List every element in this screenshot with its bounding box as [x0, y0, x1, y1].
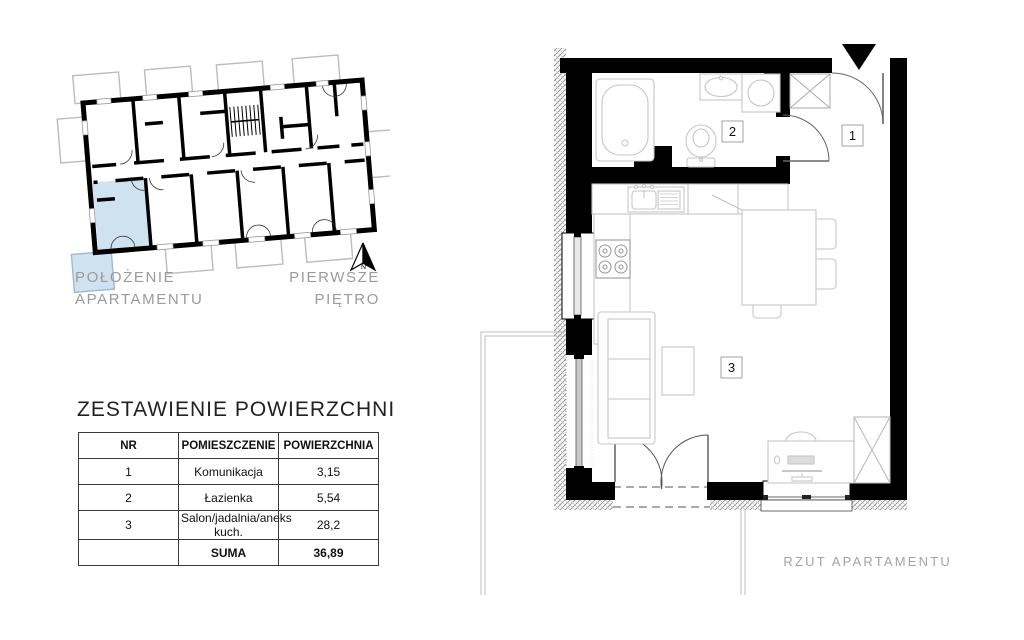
apartment-floor-plan: 1 2 3: [450, 28, 980, 608]
room-label-2: 2: [729, 124, 736, 139]
total-empty-cell: [79, 540, 179, 566]
entrance-triangle-icon: [842, 44, 876, 70]
table-row: 2 Łazienka 5,54: [79, 485, 379, 511]
page: POŁOŻENIE APARTAMENTU N PIERWSZE PIĘTRO …: [0, 0, 1024, 640]
toilet: [686, 125, 716, 167]
room-label-1: 1: [849, 128, 856, 143]
plan-caption: RZUT APARTAMENTU: [783, 554, 952, 569]
row-area: 5,54: [279, 485, 379, 511]
kitchen-sink: [628, 184, 684, 212]
row-room: Komunikacja: [179, 459, 279, 485]
row-room: Salon/jadalnia/aneks kuch.: [179, 511, 279, 540]
row-room: Łazienka: [179, 485, 279, 511]
bathroom-sink: [700, 74, 742, 100]
table-row: 1 Komunikacja 3,15: [79, 459, 379, 485]
overview-stairs: [230, 105, 260, 137]
total-value: 36,89: [279, 540, 379, 566]
desk: [768, 432, 854, 483]
highlighted-apartment: [93, 178, 151, 250]
row-nr: 1: [79, 459, 179, 485]
bathroom-door: [783, 115, 829, 161]
row-nr: 3: [79, 511, 179, 540]
table-total-row: SUMA 36,89: [79, 540, 379, 566]
shaft-box: [790, 74, 830, 108]
bathtub: [596, 79, 654, 161]
wardrobe: [854, 417, 890, 483]
col-header-room: POMIESZCZENIE: [179, 433, 279, 459]
coffee-table: [662, 347, 694, 395]
col-header-nr: NR: [79, 433, 179, 459]
stove: [596, 240, 630, 278]
washing-machine: [742, 74, 780, 112]
entrance-door: [832, 73, 883, 124]
sofa: [598, 312, 655, 444]
area-table-title: ZESTAWIENIE POWIERZCHNI: [77, 398, 395, 422]
floor-caption-line2: PIĘTRO: [180, 289, 380, 311]
area-table-header-row: NR POMIESZCZENIE POWIERZCHNIA: [79, 433, 379, 459]
row-area: 3,15: [279, 459, 379, 485]
kitchen-window: [562, 233, 594, 319]
floor-caption-line1: PIERWSZE: [180, 267, 380, 289]
room-label-3: 3: [728, 360, 735, 375]
col-header-area: POWIERZCHNIA: [279, 433, 379, 459]
row-nr: 2: [79, 485, 179, 511]
area-table: NR POMIESZCZENIE POWIERZCHNIA 1 Komunika…: [78, 432, 379, 566]
row-area: 28,2: [279, 511, 379, 540]
dining-table: [712, 195, 836, 318]
balcony-door: [611, 435, 711, 507]
bottom-window: [761, 481, 852, 511]
total-label: SUMA: [179, 540, 279, 566]
living-window: [566, 355, 592, 470]
floor-caption: PIERWSZE PIĘTRO: [180, 267, 380, 311]
table-row: 3 Salon/jadalnia/aneks kuch. 28,2: [79, 511, 379, 540]
